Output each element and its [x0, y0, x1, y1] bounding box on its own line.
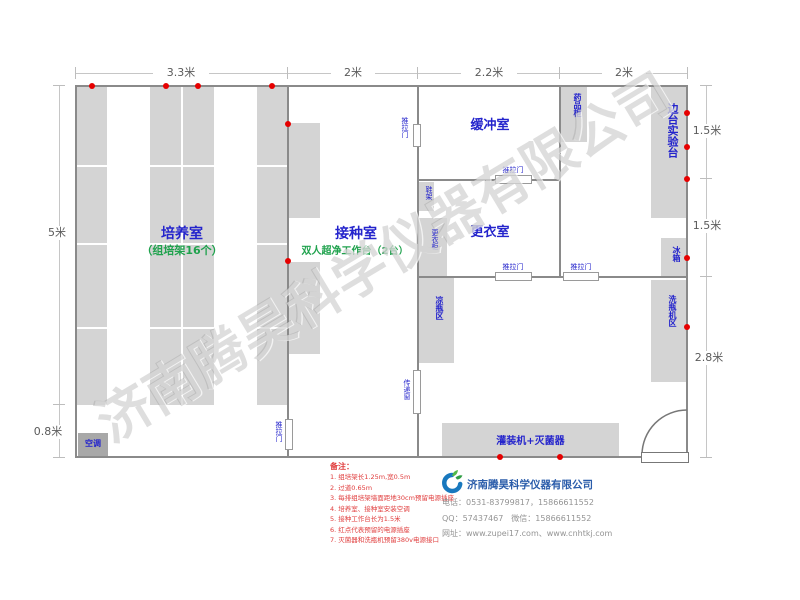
- wall-buffer-lab: [559, 85, 561, 278]
- bottle-cooling-label: 凉瓶区: [430, 296, 444, 320]
- fridge-label: 冰箱: [667, 246, 681, 262]
- dim-tick: [75, 67, 76, 79]
- sliding-door: [495, 272, 532, 281]
- dim-tick: [53, 457, 65, 458]
- note-item: 1. 组培架长1.25m,宽0.5m: [330, 472, 490, 483]
- dim-top-4: 2米: [602, 66, 646, 80]
- company-phone: 电话：0531-83799817，15866611552: [442, 497, 594, 508]
- room-label-culture: 培养室: [112, 223, 252, 243]
- dim-top-3: 2.2米: [461, 66, 517, 80]
- company-qq-wechat: QQ：57437467 微信：15866611552: [442, 513, 591, 524]
- power-socket-dot: [195, 83, 201, 89]
- wardrobe-label: 更衣柜: [427, 229, 439, 250]
- dim-line-right: [706, 85, 707, 458]
- dim-tick: [700, 85, 712, 86]
- dim-tick: [53, 404, 65, 405]
- filling-sterilizer-label: 灌装机+灭菌器: [442, 432, 619, 447]
- note-item: 2. 过道0.65m: [330, 483, 490, 494]
- dim-right-3: 2.8米: [689, 351, 729, 365]
- bottle-washer-label: 洗瓶机区: [662, 295, 677, 327]
- power-socket-dot: [684, 255, 690, 261]
- transfer-window-symbol: [413, 370, 421, 414]
- sliding-door-label: 推拉门: [561, 262, 601, 272]
- power-socket-dot: [684, 144, 690, 150]
- sliding-door: [495, 175, 532, 184]
- power-socket-dot: [557, 454, 563, 460]
- entrance-door-arc: [640, 408, 689, 457]
- sliding-door-label: 推拉门: [397, 117, 409, 138]
- dim-left-2: 0.8米: [24, 425, 72, 439]
- power-socket-dot: [163, 83, 169, 89]
- dim-tick: [287, 67, 288, 79]
- power-socket-dot: [684, 324, 690, 330]
- dim-right-2: 1.5米: [688, 219, 726, 233]
- dim-line-left: [59, 85, 60, 458]
- power-socket-dot: [89, 83, 95, 89]
- air-conditioner-label: 空调: [78, 438, 108, 449]
- dim-tick: [417, 67, 418, 79]
- power-socket-dot: [684, 110, 690, 116]
- dim-tick: [700, 178, 712, 179]
- notes-title: 备注：: [330, 461, 490, 472]
- sliding-door-label: 推拉门: [271, 421, 283, 442]
- transfer-window-label: 传递窗: [399, 379, 411, 400]
- room-sub-inoculation: 双人超净工作台（2台）: [270, 242, 440, 257]
- sliding-door: [285, 419, 293, 450]
- floorplan-canvas: 培养室 （组培架16个） 接种室 双人超净工作台（2台） 缓冲室 更衣室 药品柜…: [0, 0, 800, 600]
- power-socket-dot: [285, 258, 291, 264]
- room-label-buffer: 缓冲室: [449, 114, 531, 133]
- room-label-inoculation: 接种室: [286, 223, 426, 243]
- sliding-door-label: 推拉门: [493, 165, 533, 175]
- company-website: 网址：www.zupei17.com、www.cnhtkj.com: [442, 528, 612, 539]
- wall-changing-south: [417, 276, 688, 278]
- dim-top-1: 3.3米: [153, 66, 209, 80]
- sliding-door-label: 推拉门: [493, 262, 533, 272]
- power-socket-dot: [269, 83, 275, 89]
- side-bench-label: 边台实验台: [660, 103, 678, 158]
- dim-top-2: 2米: [331, 66, 375, 80]
- dim-tick: [53, 85, 65, 86]
- wall-culture-inoculation: [287, 85, 289, 458]
- dim-left-1: 5米: [40, 226, 74, 240]
- wall-buffer-changing: [417, 179, 561, 181]
- dim-tick: [687, 67, 688, 79]
- medicine-cabinet-label: 药品柜: [566, 93, 582, 117]
- sliding-door: [413, 124, 421, 147]
- power-socket-dot: [497, 454, 503, 460]
- company-logo: [440, 469, 464, 495]
- sliding-door: [563, 272, 599, 281]
- power-socket-dot: [684, 176, 690, 182]
- room-sub-culture: （组培架16个）: [102, 242, 262, 258]
- company-name: 济南腾昊科学仪器有限公司: [467, 477, 593, 492]
- power-socket-dot: [285, 121, 291, 127]
- shoe-rack-label: 鞋架: [421, 186, 433, 200]
- dim-tick: [559, 67, 560, 79]
- dim-tick: [700, 276, 712, 277]
- dim-tick: [700, 457, 712, 458]
- dim-right-1: 1.5米: [688, 124, 726, 138]
- entrance-door-leaf: [641, 452, 689, 463]
- room-label-changing: 更衣室: [449, 221, 531, 240]
